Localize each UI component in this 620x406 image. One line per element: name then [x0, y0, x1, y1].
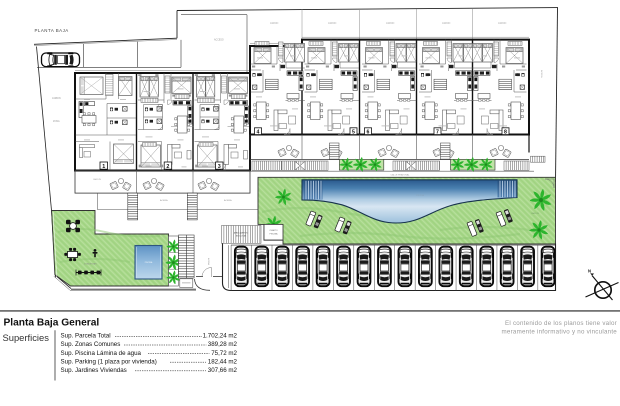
svg-text:JARDIN: JARDIN	[93, 178, 101, 181]
svg-text:7: 7	[436, 129, 439, 135]
svg-text:ZONA: ZONA	[53, 120, 60, 123]
svg-text:8: 8	[504, 129, 507, 135]
svg-text:JARDIN: JARDIN	[270, 22, 279, 25]
svg-text:4: 4	[257, 129, 260, 135]
svg-text:JARDIN: JARDIN	[386, 22, 395, 25]
svg-text:JARDIN: JARDIN	[498, 22, 507, 25]
svg-text:CUARTO: CUARTO	[269, 229, 278, 232]
svg-text:2: 2	[166, 164, 169, 170]
svg-text:ACERA: ACERA	[224, 199, 232, 202]
svg-text:5: 5	[352, 129, 355, 135]
svg-text:PISCINA: PISCINA	[416, 194, 425, 197]
svg-text:Sup. Piscina Lámina de agua: Sup. Piscina Lámina de agua	[61, 350, 142, 357]
svg-text:ACERA: ACERA	[207, 258, 210, 266]
svg-text:JARDIN: JARDIN	[442, 22, 451, 25]
svg-text:Planta Baja General: Planta Baja General	[4, 318, 100, 329]
svg-text:PISCINA: PISCINA	[145, 261, 153, 264]
svg-text:1: 1	[102, 164, 105, 170]
svg-text:JARDIN: JARDIN	[328, 22, 337, 25]
svg-text:Sup. Zonas Comunes: Sup. Zonas Comunes	[61, 341, 121, 348]
svg-text:PLANTA BAJA: PLANTA BAJA	[35, 28, 69, 33]
svg-text:182,44 m2: 182,44 m2	[208, 358, 238, 365]
svg-text:PISCINA: PISCINA	[269, 233, 278, 236]
svg-text:El contenido de los planos tie: El contenido de los planos tiene valor	[505, 320, 617, 327]
svg-text:CALLE PEATONAL: CALLE PEATONAL	[390, 174, 410, 177]
svg-text:ACERA: ACERA	[160, 199, 168, 202]
svg-text:BICICLETAS: BICICLETAS	[236, 235, 247, 238]
svg-text:307,66 m2: 307,66 m2	[208, 367, 238, 374]
svg-text:N: N	[588, 269, 591, 274]
svg-text:Sup. Parking (1 plaza por vivi: Sup. Parking (1 plaza por vivienda)	[61, 358, 157, 365]
svg-text:Sup. Jardines Viviendas: Sup. Jardines Viviendas	[61, 367, 127, 374]
svg-text:389,28 m2: 389,28 m2	[208, 341, 238, 348]
svg-text:Sup. Parcela Total: Sup. Parcela Total	[61, 333, 111, 340]
svg-text:meramente informativo y no vin: meramente informativo y no vinculante	[501, 329, 617, 336]
svg-text:ZONA ESTAR: ZONA ESTAR	[84, 263, 97, 266]
svg-text:1.702,24 m2: 1.702,24 m2	[203, 333, 238, 340]
svg-text:75,72 m2: 75,72 m2	[211, 350, 237, 357]
svg-text:ACCESO: ACCESO	[214, 39, 224, 42]
svg-text:6: 6	[367, 129, 370, 135]
svg-text:3: 3	[218, 164, 221, 170]
svg-text:JARDIN: JARDIN	[52, 97, 61, 100]
svg-text:ACERA: ACERA	[540, 70, 543, 78]
svg-text:JARDIN: JARDIN	[531, 212, 539, 215]
svg-text:APARCAMIENTO: APARCAMIENTO	[234, 232, 249, 235]
svg-text:Superficies: Superficies	[3, 332, 50, 343]
